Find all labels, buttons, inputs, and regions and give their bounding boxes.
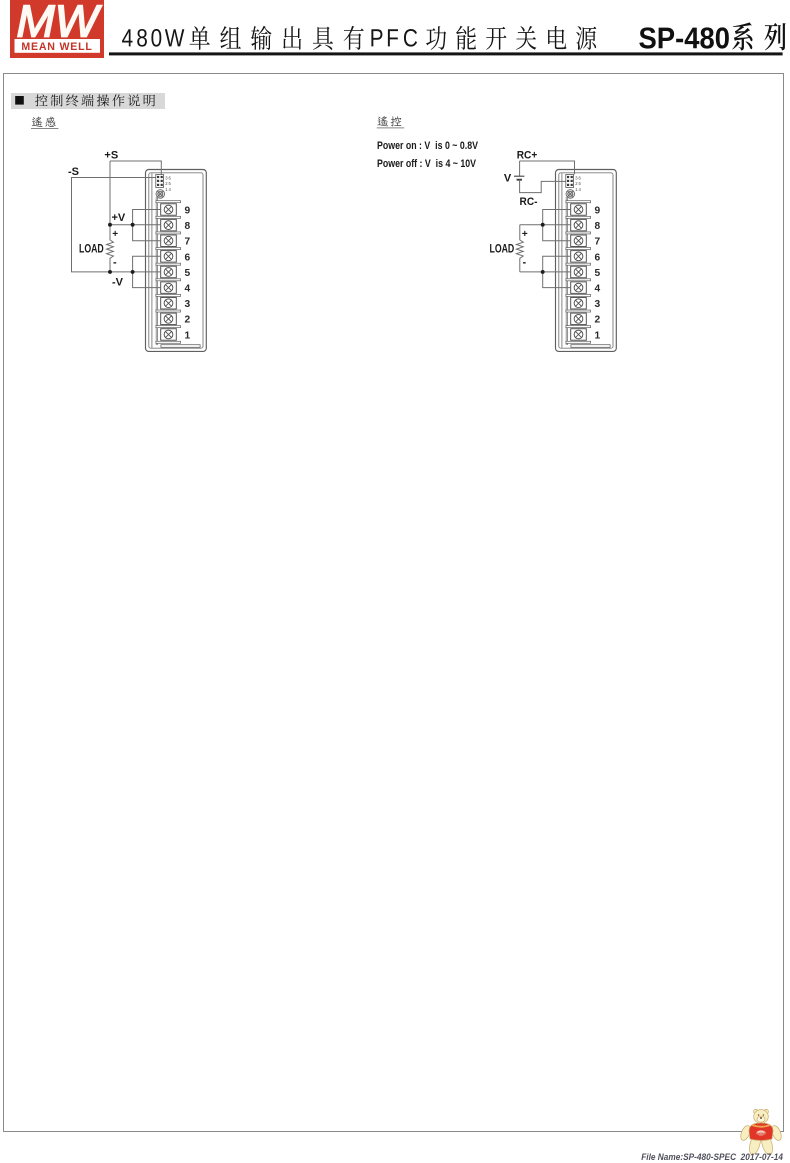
svg-text:-: - (113, 256, 117, 268)
svg-text:LOAD: LOAD (490, 244, 515, 256)
svg-text:-: - (522, 256, 526, 268)
svg-text:+: + (112, 229, 118, 240)
svg-text:4: 4 (594, 284, 600, 295)
svg-text:1: 1 (184, 330, 190, 341)
svg-text:2: 2 (184, 315, 190, 326)
svg-text:+: + (522, 229, 528, 240)
svg-text:LOAD: LOAD (79, 244, 104, 256)
svg-text:+S: +S (104, 150, 118, 162)
svg-text:V: V (504, 172, 512, 184)
svg-text:36: 36 (165, 175, 171, 180)
svg-text:9: 9 (184, 205, 190, 216)
svg-text:4: 4 (184, 284, 190, 295)
svg-text:3: 3 (184, 299, 190, 310)
svg-text:8: 8 (594, 221, 600, 232)
svg-text:6: 6 (594, 252, 600, 263)
svg-text:-V: -V (112, 276, 124, 288)
svg-text:36: 36 (575, 175, 581, 180)
svg-text:8: 8 (184, 221, 190, 232)
svg-text:RC+: RC+ (517, 149, 537, 161)
svg-text:14: 14 (575, 187, 581, 192)
svg-text:6: 6 (184, 252, 190, 263)
svg-text:7: 7 (594, 237, 600, 248)
svg-text:25: 25 (165, 181, 171, 186)
svg-text:14: 14 (165, 187, 171, 192)
svg-text:-S: -S (68, 166, 79, 178)
svg-text:5: 5 (184, 268, 190, 279)
svg-text:25: 25 (575, 181, 581, 186)
svg-text:RC-: RC- (520, 196, 538, 208)
svg-text:2: 2 (594, 315, 600, 326)
svg-text:1: 1 (594, 330, 600, 341)
svg-text:9: 9 (594, 205, 600, 216)
svg-text:7: 7 (184, 237, 190, 248)
svg-text:3: 3 (594, 299, 600, 310)
svg-text:5: 5 (594, 268, 600, 279)
svg-text:MW: MW (757, 1132, 766, 1137)
svg-text:+V: +V (112, 212, 126, 224)
